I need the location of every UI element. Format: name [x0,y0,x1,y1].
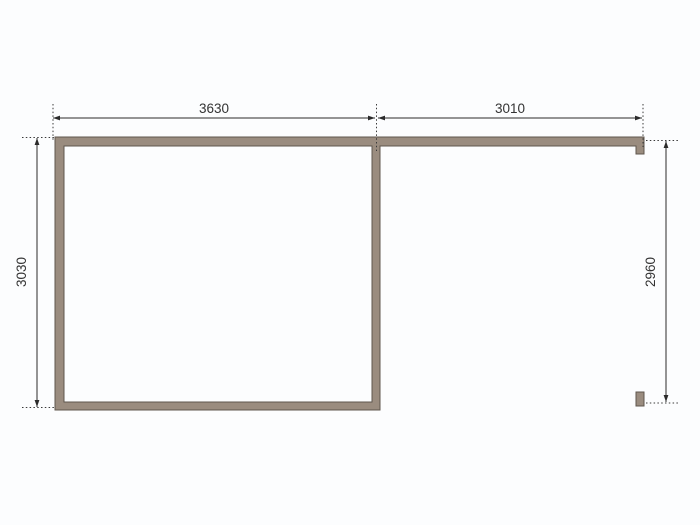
post-bottom-right [636,392,644,406]
wall-structure [55,137,644,410]
dimension-drawing-canvas: 3630 3010 3030 2960 [0,0,700,525]
arrowhead-left-icon [53,116,60,121]
floor-plan-svg: 3630 3010 3030 2960 [0,0,700,525]
arrowhead-left-icon [378,116,385,121]
extension-lines [22,104,678,408]
arrowhead-down-icon [35,400,40,407]
dimension-label-left: 3030 [14,257,29,287]
dimension-top-right: 3010 [378,101,642,120]
dimension-right: 2960 [643,141,668,402]
arrowhead-up-icon [664,141,669,148]
dimension-left: 3030 [14,138,39,407]
dimension-label-right: 2960 [643,257,658,287]
arrowhead-right-icon [635,116,642,121]
arrowhead-right-icon [368,116,375,121]
dimension-label-top-left: 3630 [199,101,229,116]
dimension-label-top-right: 3010 [495,101,525,116]
arrowhead-up-icon [35,138,40,145]
dimension-top-left: 3630 [53,101,375,120]
arrowhead-down-icon [664,395,669,402]
